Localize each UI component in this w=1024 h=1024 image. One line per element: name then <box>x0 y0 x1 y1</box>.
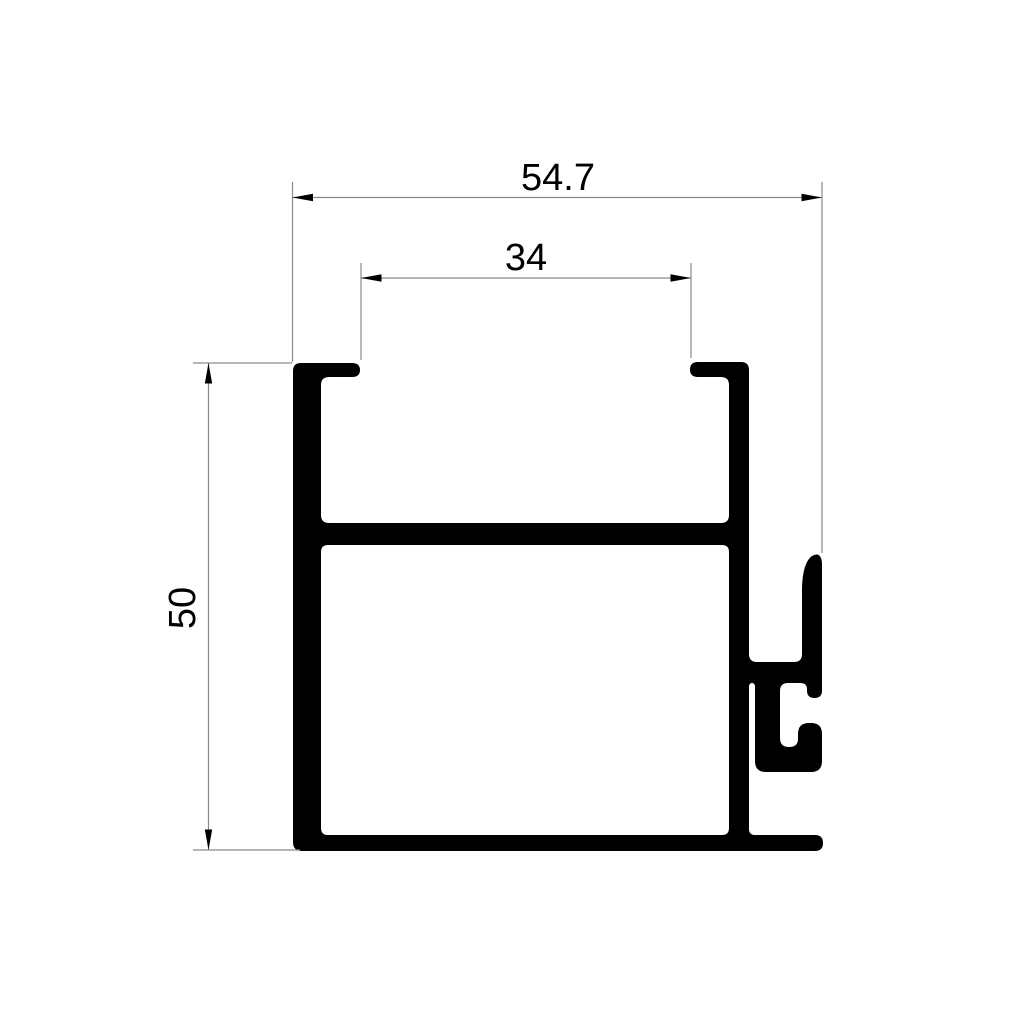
arrowhead-height-top <box>205 363 212 384</box>
dimension-label-height: 50 <box>162 587 204 629</box>
dimension-label-inner-width: 34 <box>505 237 547 279</box>
dimension-inner-width: 34 <box>361 237 691 360</box>
technical-drawing-canvas: 54.7 34 50 <box>0 0 1024 1024</box>
dimension-label-total-width: 54.7 <box>521 157 595 199</box>
profile-cross-section <box>293 362 823 851</box>
dimension-height: 50 <box>162 363 300 850</box>
arrowhead-total-width-left <box>293 194 314 201</box>
arrowhead-height-bottom <box>205 830 212 851</box>
arrowhead-inner-width-left <box>361 274 382 281</box>
arrowhead-inner-width-right <box>671 274 692 281</box>
technical-drawing-page: 54.7 34 50 <box>0 0 1024 1024</box>
arrowhead-total-width-right <box>802 194 823 201</box>
